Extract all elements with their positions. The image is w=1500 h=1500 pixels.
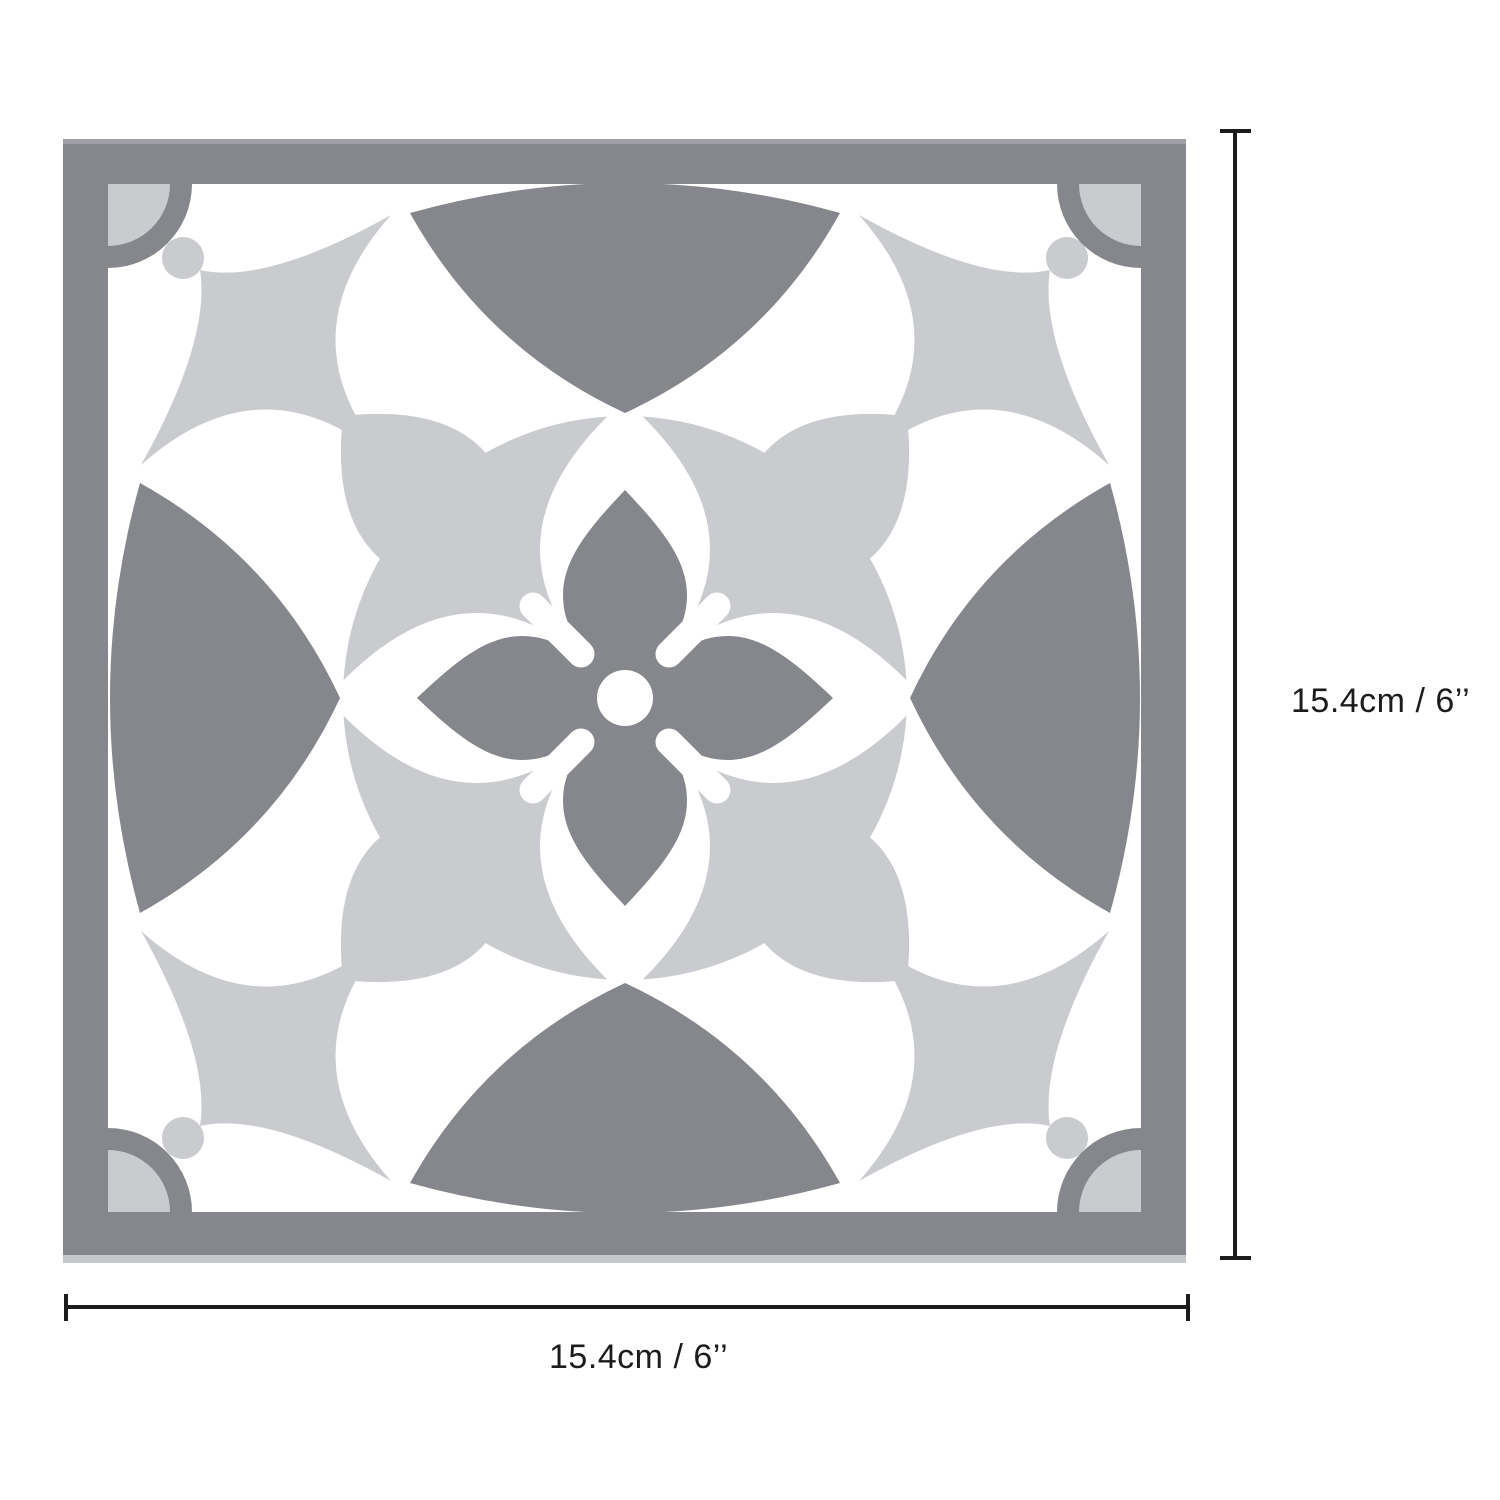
tile-illustration	[0, 0, 1500, 1500]
width-dimension-line	[66, 1294, 1188, 1321]
product-dimension-diagram: 15.4cm / 6’’ 15.4cm / 6’’	[0, 0, 1500, 1500]
frame-top-highlight	[63, 139, 1186, 144]
flower-center-dot	[597, 670, 653, 726]
frame-bottom-shadow	[63, 1255, 1186, 1263]
height-dimension-label: 15.4cm / 6’’	[1291, 684, 1470, 718]
star-knob	[162, 237, 204, 279]
width-dimension-label: 15.4cm / 6’’	[549, 1340, 728, 1374]
star-knob	[162, 1117, 204, 1159]
height-dimension-line	[1220, 131, 1251, 1258]
